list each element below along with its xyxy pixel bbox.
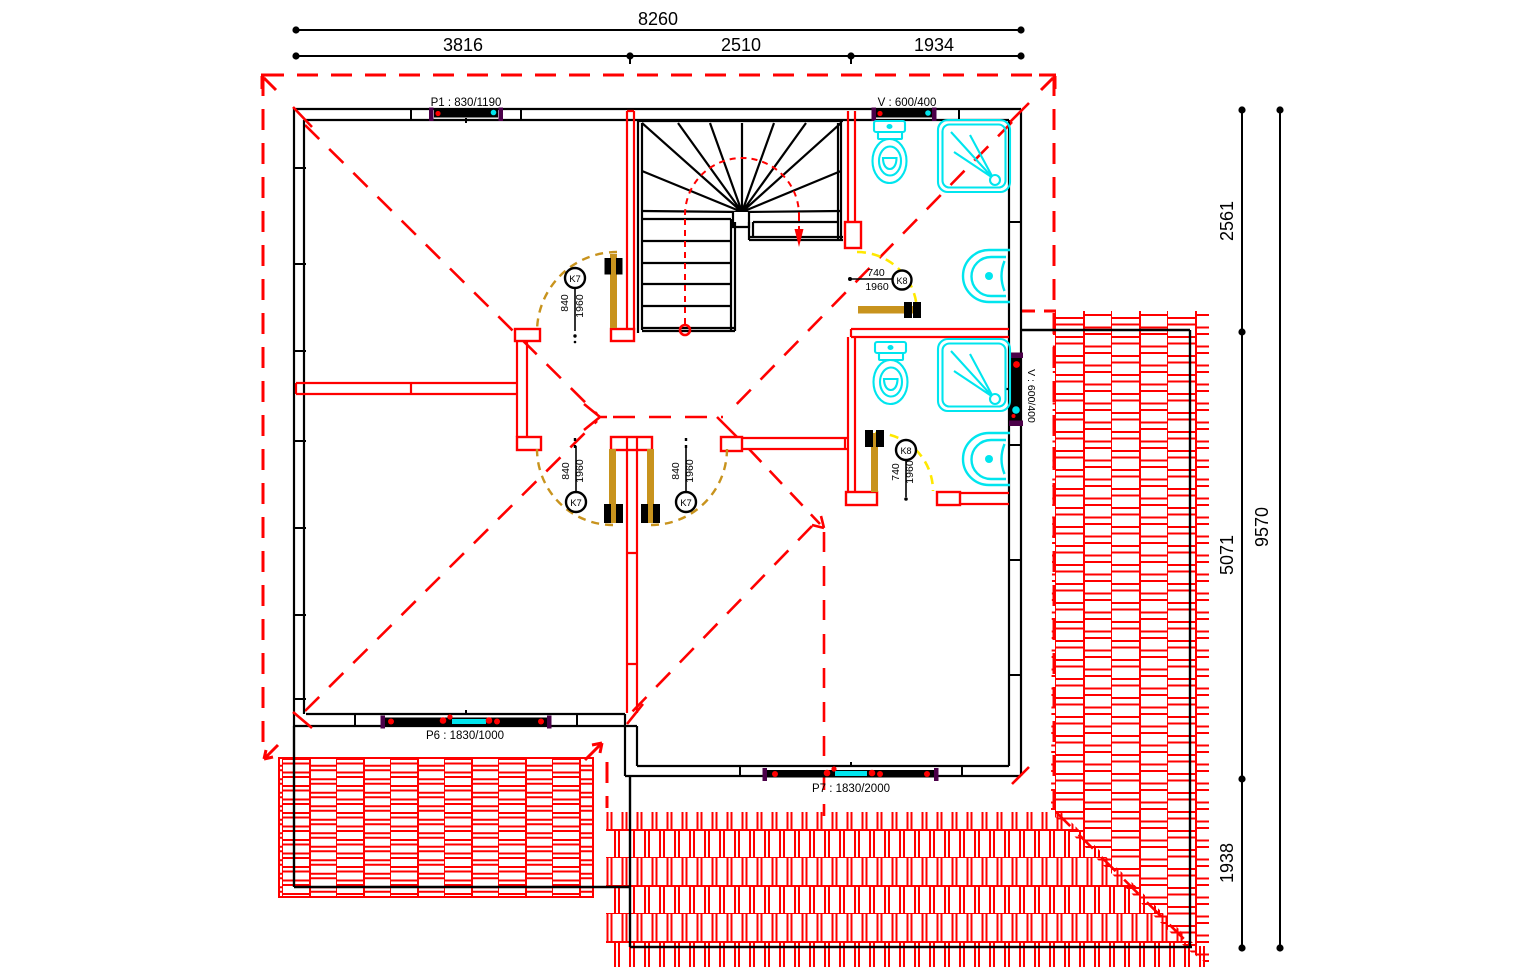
svg-text:K8: K8	[896, 276, 907, 286]
svg-text:3816: 3816	[443, 35, 483, 55]
svg-text:P7 : 1830/2000: P7 : 1830/2000	[812, 783, 890, 795]
svg-text:5071: 5071	[1217, 535, 1237, 575]
svg-text:8260: 8260	[638, 9, 678, 29]
svg-text:1934: 1934	[914, 35, 954, 55]
svg-text:1938: 1938	[1217, 843, 1237, 883]
svg-text:K7: K7	[680, 498, 692, 509]
svg-text:9570: 9570	[1252, 507, 1272, 547]
svg-text:1960: 1960	[684, 459, 696, 483]
svg-text:740: 740	[867, 267, 885, 279]
svg-text:840: 840	[559, 294, 571, 312]
svg-text:V : 600/400: V : 600/400	[1025, 369, 1037, 423]
svg-text:V : 600/400: V : 600/400	[878, 97, 937, 109]
svg-text:2561: 2561	[1217, 201, 1237, 241]
svg-text:840: 840	[670, 462, 682, 480]
svg-text:K7: K7	[569, 274, 581, 285]
svg-text:K8: K8	[900, 446, 911, 456]
svg-text:K7: K7	[570, 498, 582, 509]
svg-text:840: 840	[560, 462, 572, 480]
svg-text:740: 740	[890, 463, 902, 481]
svg-text:P1 : 830/1190: P1 : 830/1190	[431, 97, 502, 109]
svg-text:1960: 1960	[904, 460, 916, 484]
svg-text:1960: 1960	[574, 459, 586, 483]
svg-text:1960: 1960	[865, 281, 889, 293]
svg-text:P6 : 1830/1000: P6 : 1830/1000	[426, 730, 504, 742]
svg-text:1960: 1960	[574, 294, 586, 318]
svg-text:2510: 2510	[721, 35, 761, 55]
